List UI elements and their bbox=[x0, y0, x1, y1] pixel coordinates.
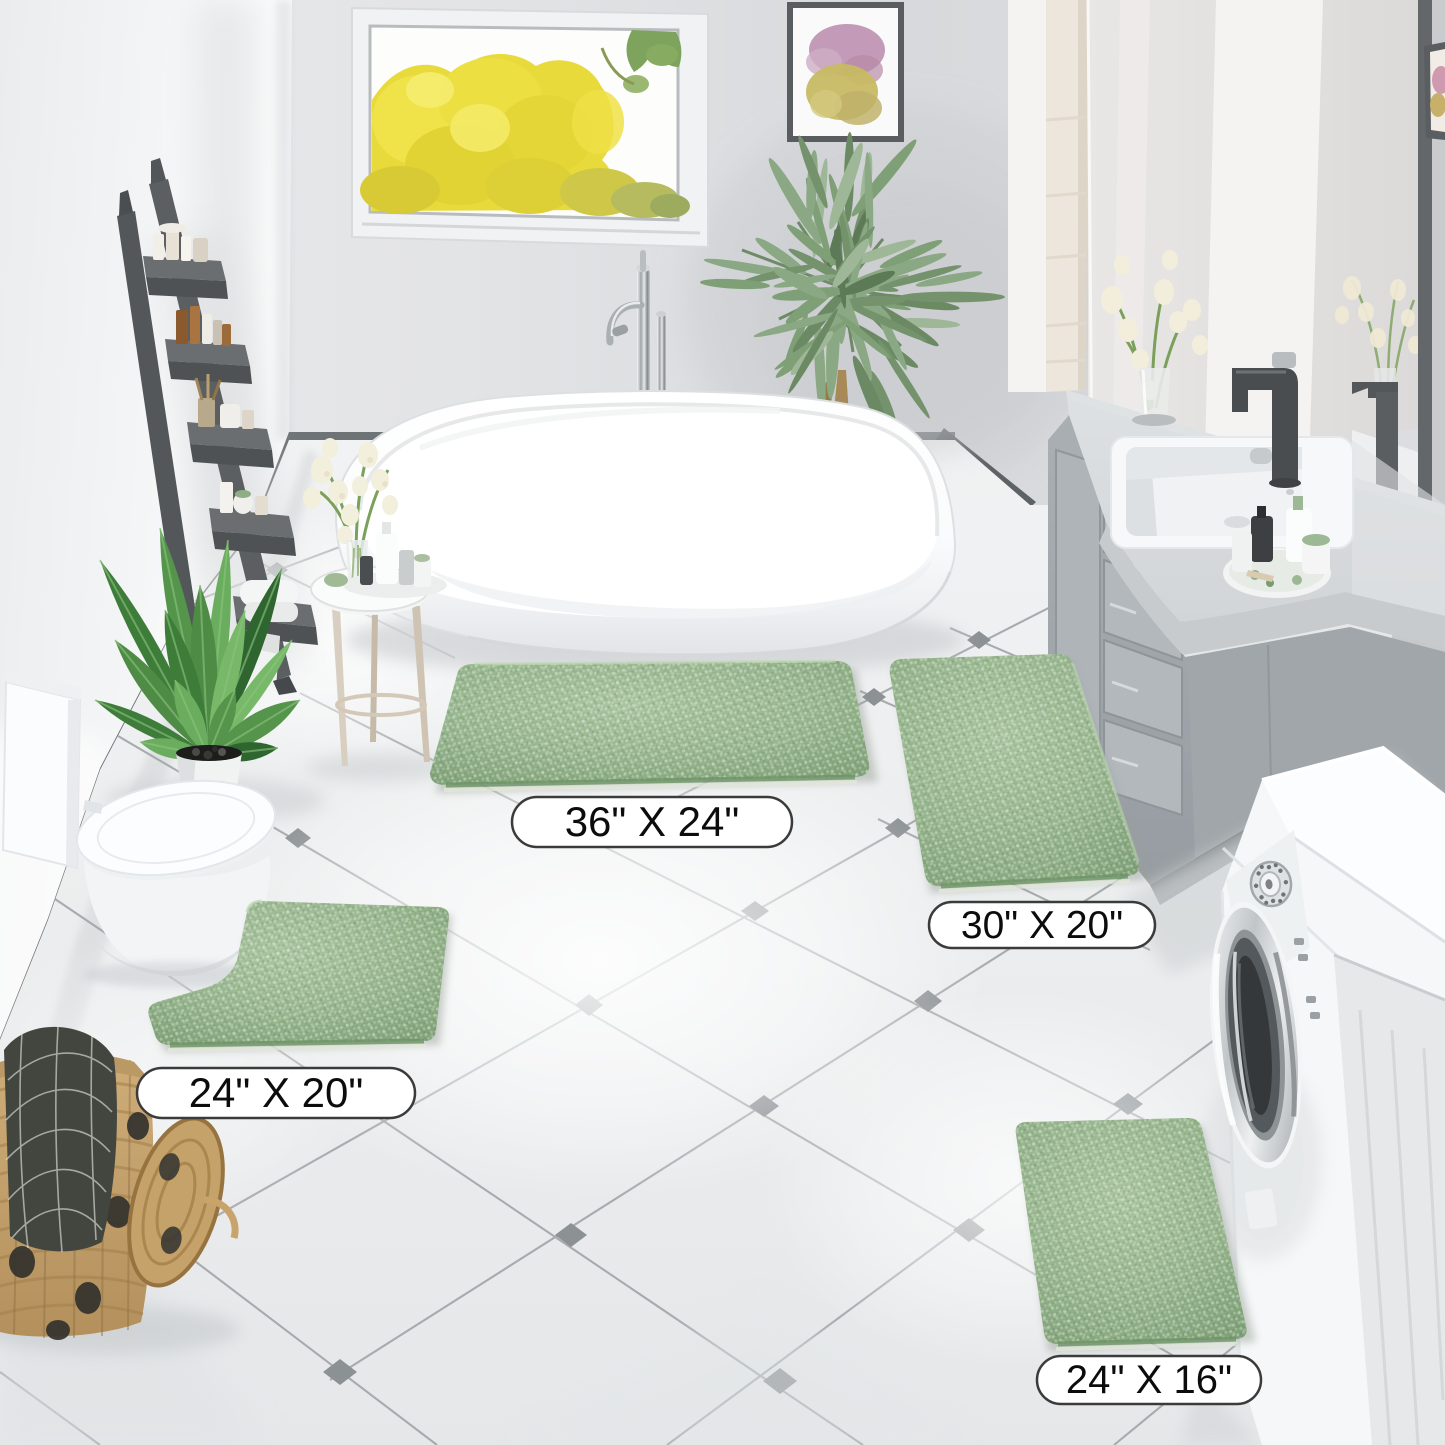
svg-text:36" X 24": 36" X 24" bbox=[565, 798, 740, 845]
svg-text:30" X 20": 30" X 20" bbox=[961, 904, 1123, 947]
svg-text:24" X 20": 24" X 20" bbox=[189, 1069, 364, 1116]
svg-text:24" X 16": 24" X 16" bbox=[1066, 1358, 1232, 1402]
